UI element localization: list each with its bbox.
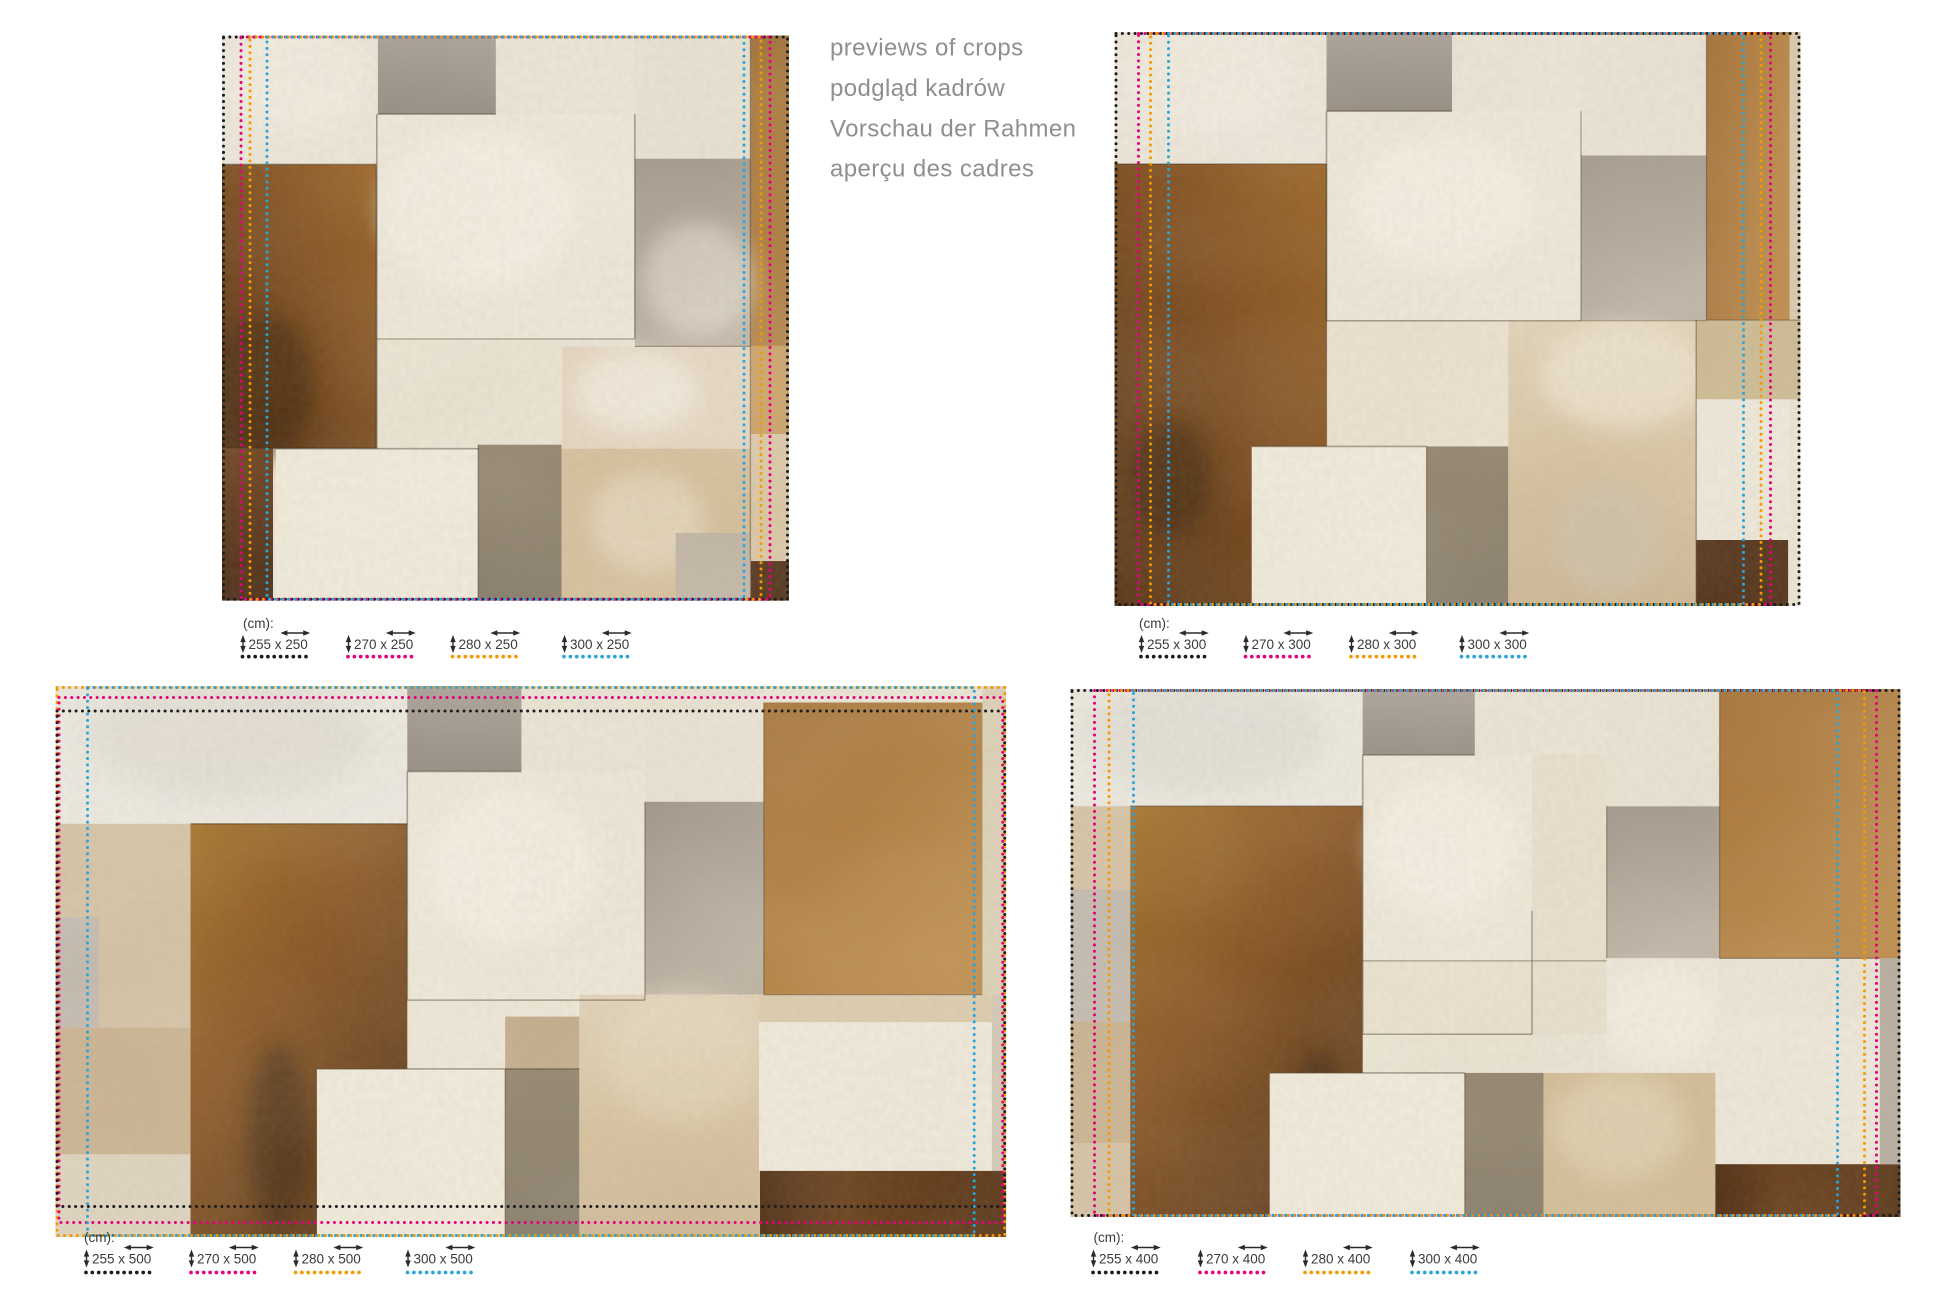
svg-text:300 x 250: 300 x 250 — [570, 637, 629, 652]
svg-text:280 x 300: 280 x 300 — [1357, 637, 1416, 652]
svg-text:(cm):: (cm): — [1139, 616, 1170, 631]
svg-text:255 x 400: 255 x 400 — [1099, 1252, 1158, 1267]
svg-text:aperçu des cadres: aperçu des cadres — [830, 156, 1034, 183]
svg-text:270 x 250: 270 x 250 — [354, 637, 413, 652]
svg-text:280 x 500: 280 x 500 — [302, 1252, 361, 1267]
svg-text:podgląd kadrów: podgląd kadrów — [830, 75, 1005, 102]
svg-text:(cm):: (cm): — [84, 1230, 115, 1245]
svg-text:280 x 400: 280 x 400 — [1311, 1252, 1370, 1267]
svg-text:300 x 300: 300 x 300 — [1468, 637, 1527, 652]
svg-text:255 x 500: 255 x 500 — [92, 1252, 151, 1267]
svg-text:280 x 250: 280 x 250 — [459, 637, 518, 652]
svg-text:previews of crops: previews of crops — [830, 35, 1024, 62]
svg-text:270 x 500: 270 x 500 — [197, 1252, 256, 1267]
svg-text:300 x 400: 300 x 400 — [1418, 1252, 1477, 1267]
svg-text:255 x 300: 255 x 300 — [1147, 637, 1206, 652]
svg-text:300 x 500: 300 x 500 — [414, 1252, 473, 1267]
svg-text:Vorschau der Rahmen: Vorschau der Rahmen — [830, 115, 1076, 142]
svg-text:270 x 400: 270 x 400 — [1206, 1252, 1265, 1267]
svg-text:270 x 300: 270 x 300 — [1252, 637, 1311, 652]
svg-text:255 x 250: 255 x 250 — [249, 637, 308, 652]
svg-text:(cm):: (cm): — [243, 616, 274, 631]
svg-text:(cm):: (cm): — [1094, 1230, 1125, 1245]
